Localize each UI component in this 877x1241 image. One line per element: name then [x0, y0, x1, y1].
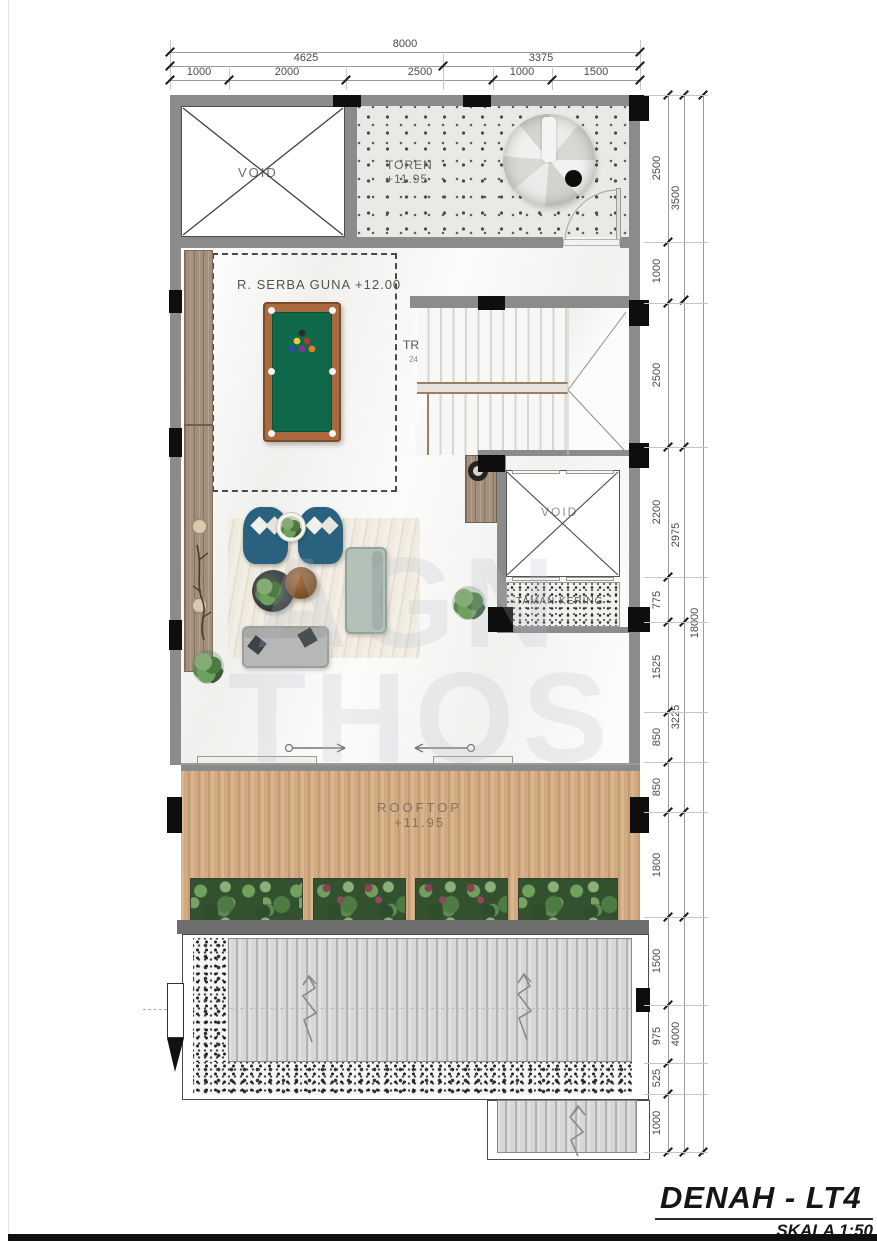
dim-extension-line	[644, 447, 708, 448]
watermark: THOS	[228, 655, 616, 783]
dim-extension-line	[644, 242, 708, 243]
dim-extension-line	[644, 917, 708, 918]
dim-extension-line	[644, 712, 708, 713]
dim-extension-line	[644, 762, 708, 763]
title-underline	[655, 1218, 873, 1220]
dim-extension-line	[644, 622, 708, 623]
dim-extension-line	[644, 1152, 708, 1153]
dim-extension-line	[644, 812, 708, 813]
sheet-title: DENAH - LT4	[660, 1180, 862, 1216]
bottom-bar	[8, 1234, 877, 1241]
dim-extension-line	[644, 1005, 708, 1006]
dim-extension-line	[644, 1094, 708, 1095]
dim-extension-line	[644, 303, 708, 304]
dim-extension-line	[644, 577, 708, 578]
dim-extension-line	[644, 1063, 708, 1064]
floor-plan-sheet: 8000 4625 3375 1000 2000 2500 1000 1500 …	[0, 0, 877, 1241]
dim-extension-line	[644, 95, 708, 96]
